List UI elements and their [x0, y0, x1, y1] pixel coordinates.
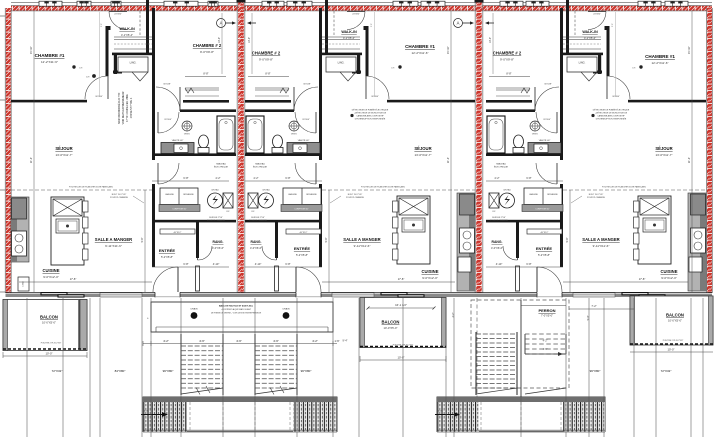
svg-text:SALLE A MANGER: SALLE A MANGER — [582, 237, 619, 242]
svg-text:4'-10": 4'-10" — [213, 262, 220, 266]
svg-text:4'-2": 4'-2" — [253, 176, 258, 180]
svg-text:30"X80": 30"X80" — [371, 96, 379, 98]
svg-text:6": 6" — [148, 317, 150, 319]
svg-text:CUISINE: CUISINE — [661, 269, 678, 274]
svg-text:ÉLECTRIQUE: ÉLECTRIQUE — [214, 166, 229, 169]
svg-text:7'-0"X5'-0": 7'-0"X5'-0" — [541, 314, 553, 318]
svg-text:DÉTECTEUR DE FUMÉE ÉLECTRIQUE: DÉTECTEUR DE FUMÉE ÉLECTRIQUE — [593, 109, 630, 112]
svg-text:9'-8": 9'-8" — [325, 237, 328, 242]
svg-text:POUR PLOMBERIE: POUR PLOMBERIE — [490, 220, 509, 222]
svg-text:1'-6": 1'-6" — [335, 340, 340, 343]
svg-text:40"X12": 40"X12" — [300, 232, 308, 234]
svg-text:4'-0"X6'-6": 4'-0"X6'-6" — [491, 246, 503, 250]
svg-text:96"X80": 96"X80" — [590, 369, 601, 373]
svg-text:20"X60": 20"X60" — [543, 119, 551, 121]
svg-text:CUISINE: CUISINE — [422, 269, 439, 274]
svg-text:10'-0"X5'-0": 10'-0"X5'-0" — [668, 319, 682, 323]
svg-text:BOUT DU 2"X6": BOUT DU 2"X6" — [348, 194, 363, 196]
svg-text:24"X80": 24"X80" — [593, 14, 601, 16]
svg-text:4'-2": 4'-2" — [163, 339, 169, 343]
svg-text:BOUT DU 2"X6": BOUT DU 2"X6" — [112, 194, 127, 196]
svg-text:TABLEAU: TABLEAU — [255, 163, 265, 166]
svg-text:15'-10": 15'-10" — [29, 46, 33, 54]
svg-text:POUR PLOMBERIE: POUR PLOMBERIE — [587, 197, 606, 199]
svg-text:ÉLECTRIQUE: ÉLECTRIQUE — [253, 166, 268, 169]
svg-text:4'-2": 4'-2" — [494, 176, 499, 180]
svg-text:D'INTERRUPTION TEMPORISÉE: D'INTERRUPTION TEMPORISÉE — [596, 118, 627, 121]
svg-text:17'-8": 17'-8" — [70, 277, 77, 281]
svg-text:4'-6": 4'-6" — [273, 339, 279, 343]
svg-text:16'-1 1/2": 16'-1 1/2" — [395, 303, 407, 307]
svg-text:30"X48": 30"X48" — [544, 84, 552, 86]
svg-text:GYPSE 5/8 TYPE X: GYPSE 5/8 TYPE X — [131, 97, 133, 118]
svg-text:5'-2"X5'-8": 5'-2"X5'-8" — [296, 253, 308, 257]
svg-text:CHAMBRE #1: CHAMBRE #1 — [35, 53, 65, 58]
svg-text:72"X32": 72"X32" — [661, 369, 672, 373]
svg-text:WALK-IN: WALK-IN — [582, 30, 598, 34]
svg-text:CHAMBRE #1: CHAMBRE #1 — [645, 54, 675, 59]
svg-text:4 TYP. COUPE-FEU 1HRE: 4 TYP. COUPE-FEU 1HRE — [127, 94, 129, 122]
svg-text:6'-8": 6'-8" — [526, 262, 531, 266]
svg-text:20"X60": 20"X60" — [302, 119, 310, 121]
svg-text:15'-10": 15'-10" — [446, 46, 450, 54]
svg-text:30"X80": 30"X80" — [95, 96, 103, 98]
svg-text:9'-0"X12'-0": 9'-0"X12'-0" — [43, 275, 59, 279]
svg-text:LAVEUSE: LAVEUSE — [529, 193, 538, 196]
svg-text:8'-8": 8'-8" — [203, 72, 208, 76]
svg-text:LING.: LING. — [338, 61, 345, 65]
svg-text:9'-11"X11'-6": 9'-11"X11'-6" — [593, 244, 610, 248]
svg-text:20"X60": 20"X60" — [164, 119, 172, 121]
svg-text:6'-8": 6'-8" — [526, 176, 531, 180]
svg-text:SÉJOUR: SÉJOUR — [55, 146, 72, 151]
svg-text:PERRON: PERRON — [538, 308, 555, 313]
svg-text:10'-0": 10'-0" — [667, 348, 674, 352]
svg-text:3'-0": 3'-0" — [371, 23, 373, 27]
svg-text:D'INTERRUPTION TEMPORISÉE: D'INTERRUPTION TEMPORISÉE — [355, 118, 386, 121]
svg-text:13'-0"X11'-7": 13'-0"X11'-7" — [414, 153, 431, 157]
svg-text:VOIR DEVIS ENTREPRENEUR: VOIR DEVIS ENTREPRENEUR — [123, 91, 125, 124]
svg-text:4'-2": 4'-2" — [215, 176, 220, 180]
svg-text:9'-11"X11'-6": 9'-11"X11'-6" — [354, 244, 371, 248]
svg-text:4'-10": 4'-10" — [255, 262, 262, 266]
svg-text:+CONTREPLAQUÉ MAR. BLANT: +CONTREPLAQUÉ MAR. BLANT — [221, 308, 252, 311]
svg-text:72"X32": 72"X32" — [52, 369, 63, 373]
svg-text:4'-6": 4'-6" — [236, 339, 242, 343]
svg-text:BALCON: BALCON — [40, 315, 58, 320]
svg-text:POUR PLOMBERIE: POUR PLOMBERIE — [346, 197, 365, 199]
svg-text:LAVEUSE: LAVEUSE — [288, 193, 297, 196]
svg-text:4'-2": 4'-2" — [543, 340, 548, 343]
svg-text:15'-10": 15'-10" — [687, 46, 691, 54]
svg-text:CH.EAU: CH.EAU — [211, 189, 219, 192]
svg-text:7'-2": 7'-2" — [591, 304, 596, 308]
svg-text:4'-10": 4'-10" — [496, 262, 503, 266]
svg-text:BALCON: BALCON — [382, 320, 400, 325]
svg-text:TABLEAU: TABLEAU — [216, 163, 226, 166]
svg-text:40"X12": 40"X12" — [174, 232, 182, 234]
svg-text:SÉJOUR: SÉJOUR — [414, 146, 431, 151]
svg-text:4'-1"X5'-4": 4'-1"X5'-4" — [121, 33, 133, 37]
svg-text:DRAIN: DRAIN — [191, 308, 198, 311]
svg-text:6'-8": 6'-8" — [183, 262, 188, 266]
svg-text:DÉTECTEUR DE FUMÉE ÉLECTRIQUE: DÉTECTEUR DE FUMÉE ÉLECTRIQUE — [352, 109, 389, 112]
svg-text:RANG.: RANG. — [213, 240, 224, 244]
svg-text:2'-0": 2'-0" — [438, 411, 442, 413]
svg-text:6'-8": 6'-8" — [183, 176, 188, 180]
svg-text:24"X80": 24"X80" — [352, 14, 360, 16]
svg-text:4'-1"X5'-4": 4'-1"X5'-4" — [584, 36, 596, 40]
svg-text:96"X80": 96"X80" — [301, 369, 312, 373]
svg-text:10'-3": 10'-3" — [489, 37, 492, 43]
svg-text:COMPTOIR 60": COMPTOIR 60" — [294, 209, 309, 211]
svg-text:12'-2"X11'-6": 12'-2"X11'-6" — [651, 61, 668, 65]
svg-text:13'-0"X11'-7": 13'-0"X11'-7" — [55, 153, 72, 157]
svg-text:4'-6": 4'-6" — [543, 348, 548, 351]
svg-text:4'-1"X5'-4": 4'-1"X5'-4" — [343, 36, 355, 40]
svg-text:CHAMBRE #1: CHAMBRE #1 — [405, 44, 435, 49]
svg-text:SÉCHEUSE: SÉCHEUSE — [547, 193, 558, 196]
svg-text:ENTRÉE: ENTRÉE — [294, 246, 311, 251]
svg-text:5'-2"X5'-8": 5'-2"X5'-8" — [161, 255, 173, 259]
svg-text:9'-0"X9'-8": 9'-0"X9'-8" — [259, 58, 273, 62]
svg-text:+DÉTECTEUR DE MONOXYDE DE: +DÉTECTEUR DE MONOXYDE DE — [354, 112, 387, 115]
svg-text:C.EAU: C.EAU — [22, 281, 25, 287]
svg-text:SÉCHEUSE: SÉCHEUSE — [183, 193, 194, 196]
svg-text:9'-11"X11'-6": 9'-11"X11'-6" — [105, 244, 122, 248]
svg-text:CHAMBRE # 2: CHAMBRE # 2 — [193, 43, 222, 48]
svg-text:9'-0"X12'-0": 9'-0"X12'-0" — [661, 276, 677, 280]
svg-text:VENT.: VENT. — [532, 134, 539, 136]
svg-text:11'-4": 11'-4" — [29, 157, 33, 163]
svg-text:40"X12": 40"X12" — [541, 232, 549, 234]
svg-text:30"X48": 30"X48" — [303, 84, 311, 86]
svg-text:2'-0": 2'-0" — [144, 411, 148, 413]
svg-text:10'-3": 10'-3" — [248, 37, 251, 43]
svg-text:SÉCHEUSE: SÉCHEUSE — [306, 193, 317, 196]
svg-text:VANITÉ 48": VANITÉ 48" — [298, 139, 310, 142]
svg-text:LAVEUSE: LAVEUSE — [165, 193, 174, 196]
svg-text:A: A — [457, 21, 460, 26]
svg-text:4'-2": 4'-2" — [452, 312, 455, 317]
svg-text:10'-0"X5'-0": 10'-0"X5'-0" — [384, 326, 398, 330]
svg-text:DRAIN: DRAIN — [283, 308, 290, 311]
svg-text:9'-8": 9'-8" — [566, 237, 569, 242]
svg-text:11'-4": 11'-4" — [446, 157, 450, 163]
svg-text:4'-2": 4'-2" — [312, 339, 318, 343]
svg-text:MUR EN 2"X6": MUR EN 2"X6" — [492, 217, 506, 219]
svg-text:WALK-IN: WALK-IN — [341, 30, 357, 34]
svg-text:SALLE A MANGER: SALLE A MANGER — [95, 237, 132, 242]
svg-text:9'-4": 9'-4" — [343, 340, 348, 343]
svg-text:8'-8": 8'-8" — [265, 72, 270, 76]
svg-text:BALCON TACTILE ET 4X4 H-Max: BALCON TACTILE ET 4X4 H-Max — [219, 305, 254, 308]
svg-text:13'-0"X11'-7": 13'-0"X11'-7" — [655, 153, 672, 157]
svg-text:BALCON: BALCON — [666, 313, 684, 318]
svg-text:COMPTOIR 60": COMPTOIR 60" — [172, 209, 187, 211]
svg-text:6'-8": 6'-8" — [285, 262, 290, 266]
svg-text:5'-0": 5'-0" — [587, 315, 590, 320]
svg-text:17'-8": 17'-8" — [639, 277, 646, 281]
svg-text:POUTRE 2 PLIS 2"X8": POUTRE 2 PLIS 2"X8" — [663, 340, 684, 342]
svg-text:CARBONE AVEC DISPOSITIF: CARBONE AVEC DISPOSITIF — [356, 115, 384, 118]
svg-text:4'-6": 4'-6" — [199, 339, 205, 343]
svg-text:LING.: LING. — [130, 61, 137, 65]
svg-text:ENTRÉE: ENTRÉE — [159, 248, 176, 253]
svg-text:POUR PLOMBERIE: POUR PLOMBERIE — [110, 197, 129, 199]
svg-text:BOUT DU 2"X6": BOUT DU 2"X6" — [589, 194, 604, 196]
svg-text:CHAMBRE # 2: CHAMBRE # 2 — [252, 51, 281, 56]
svg-text:4'-0"X6'-6": 4'-0"X6'-6" — [250, 246, 262, 250]
svg-text:+DÉTECTEUR DE MONOXYDE DE: +DÉTECTEUR DE MONOXYDE DE — [595, 112, 628, 115]
svg-text:SÉJOUR: SÉJOUR — [655, 146, 672, 151]
svg-text:24"X80": 24"X80" — [114, 14, 122, 16]
svg-text:3'-0": 3'-0" — [101, 23, 103, 27]
svg-text:VANITÉ 48": VANITÉ 48" — [172, 139, 184, 142]
svg-text:ENTRÉE: ENTRÉE — [536, 246, 553, 251]
svg-text:9'-0"X12'-0": 9'-0"X12'-0" — [422, 276, 438, 280]
svg-text:3'-0": 3'-0" — [612, 23, 614, 27]
svg-text:POUTRELLES DE PLANCHER (VOIR F: POUTRELLES DE PLANCHER (VOIR FABRICANT) — [361, 186, 405, 189]
svg-text:CARBONE AVEC DISPOSITIF: CARBONE AVEC DISPOSITIF — [597, 115, 625, 118]
svg-text:CUISINE: CUISINE — [43, 268, 60, 273]
svg-text:VENT.: VENT. — [291, 134, 298, 136]
svg-text:84"X80": 84"X80" — [115, 369, 126, 373]
svg-text:VENT.: VENT. — [184, 134, 191, 136]
svg-text:POUTRELLES DE PLANCHER (VOIR F: POUTRELLES DE PLANCHER (VOIR FABRICANT) — [602, 186, 646, 189]
svg-text:CH.EAU: CH.EAU — [503, 189, 511, 192]
svg-text:30"X80": 30"X80" — [612, 96, 620, 98]
svg-text:5'-2"X5'-8": 5'-2"X5'-8" — [538, 253, 550, 257]
svg-text:ÉLECTRIQUE: ÉLECTRIQUE — [494, 166, 509, 169]
svg-text:RANG.: RANG. — [251, 240, 262, 244]
svg-text:POUR PLOMBERIE: POUR PLOMBERIE — [207, 220, 226, 222]
svg-text:DE FIBRE DE VERRE - VOIR DEVIS: DE FIBRE DE VERRE - VOIR DEVIS ENTREPREN… — [211, 313, 262, 315]
svg-text:MUR INSONORISÉ R-20 TYP.: MUR INSONORISÉ R-20 TYP. — [118, 92, 121, 124]
svg-text:10'-0": 10'-0" — [45, 352, 52, 356]
svg-text:MUR EN 2"X6": MUR EN 2"X6" — [209, 217, 223, 219]
svg-text:96"X80": 96"X80" — [163, 369, 174, 373]
svg-text:D.F.: D.F. — [86, 77, 90, 79]
svg-text:CHAMBRE # 2: CHAMBRE # 2 — [493, 51, 522, 56]
svg-text:CH.EAU: CH.EAU — [262, 189, 270, 192]
svg-text:10'-0": 10'-0" — [397, 356, 404, 360]
svg-text:17'-8": 17'-8" — [398, 277, 405, 281]
svg-text:COMPTOIR 60": COMPTOIR 60" — [535, 209, 550, 211]
svg-text:30"X48": 30"X48" — [163, 84, 171, 86]
svg-text:POUTRE 2 PLIS 2"X8": POUTRE 2 PLIS 2"X8" — [41, 343, 62, 345]
svg-text:12'-2"X11'-6": 12'-2"X11'-6" — [411, 51, 428, 55]
svg-text:TABLEAU: TABLEAU — [496, 163, 506, 166]
svg-text:RANG.: RANG. — [492, 240, 503, 244]
svg-text:8'-8": 8'-8" — [506, 72, 511, 76]
svg-text:10'-0"X5'-0": 10'-0"X5'-0" — [42, 321, 56, 325]
svg-text:LING.: LING. — [579, 61, 586, 65]
svg-text:11'-4": 11'-4" — [687, 157, 691, 163]
svg-text:9'-0"X9'-8": 9'-0"X9'-8" — [500, 58, 514, 62]
svg-text:12'-2"X11'-6": 12'-2"X11'-6" — [41, 60, 58, 64]
svg-text:4'-0"X6'-6": 4'-0"X6'-6" — [212, 246, 224, 250]
svg-text:VANITÉ 48": VANITÉ 48" — [539, 139, 551, 142]
svg-text:SALLE A MANGER: SALLE A MANGER — [343, 237, 380, 242]
svg-text:6'-8": 6'-8" — [285, 176, 290, 180]
svg-text:WALK-IN: WALK-IN — [119, 27, 135, 31]
svg-text:9'-0"X9'-8": 9'-0"X9'-8" — [200, 50, 214, 54]
svg-text:POUR PLOMBERIE: POUR PLOMBERIE — [249, 220, 268, 222]
svg-text:9'-8": 9'-8" — [141, 237, 144, 242]
svg-text:MUR EN 2"X6": MUR EN 2"X6" — [251, 217, 265, 219]
svg-text:POUTRELLES DE PLANCHER (VOIR F: POUTRELLES DE PLANCHER (VOIR FABRICANT) — [69, 186, 113, 189]
